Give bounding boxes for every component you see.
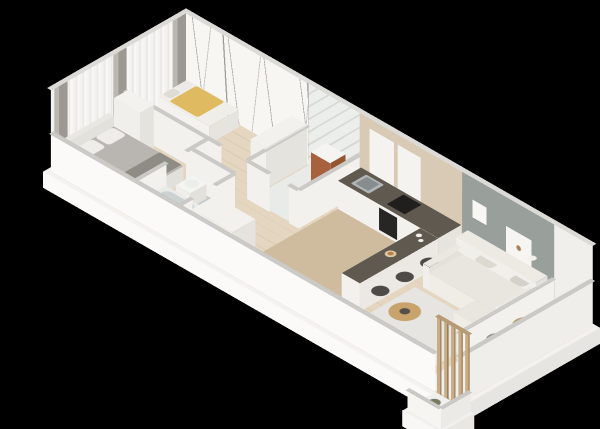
apartment-3d-floor-plan xyxy=(0,0,600,429)
partition-bath-front-b xyxy=(289,184,299,228)
